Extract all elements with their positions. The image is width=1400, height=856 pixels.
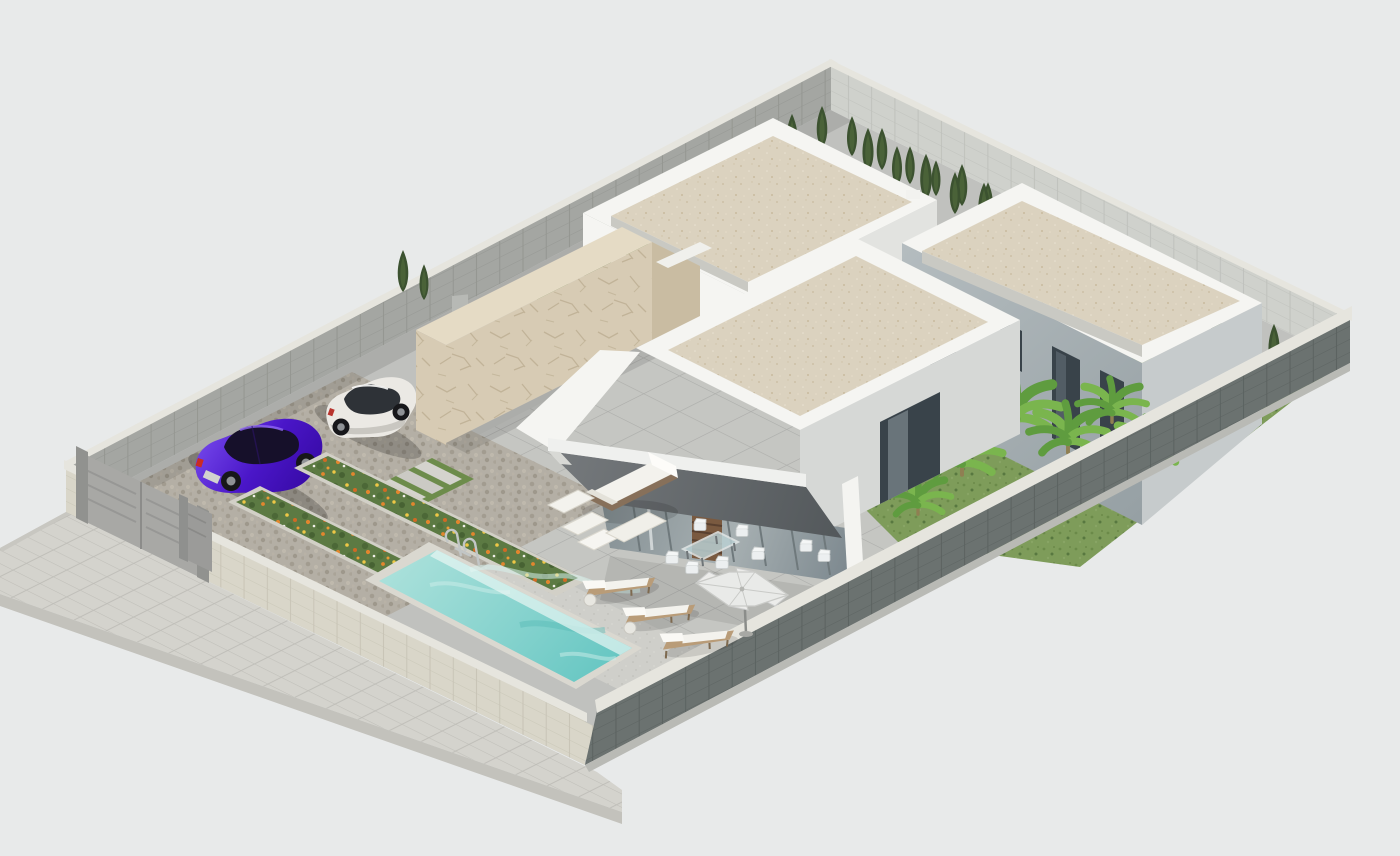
- villa-rendering: [0, 0, 1400, 856]
- rendering-stage: Isometric 3D architectural rendering of …: [0, 0, 1400, 856]
- stone-wall-end: [416, 330, 446, 445]
- roof-vent: [906, 190, 920, 199]
- side-table: [624, 622, 636, 634]
- side-table: [584, 594, 596, 606]
